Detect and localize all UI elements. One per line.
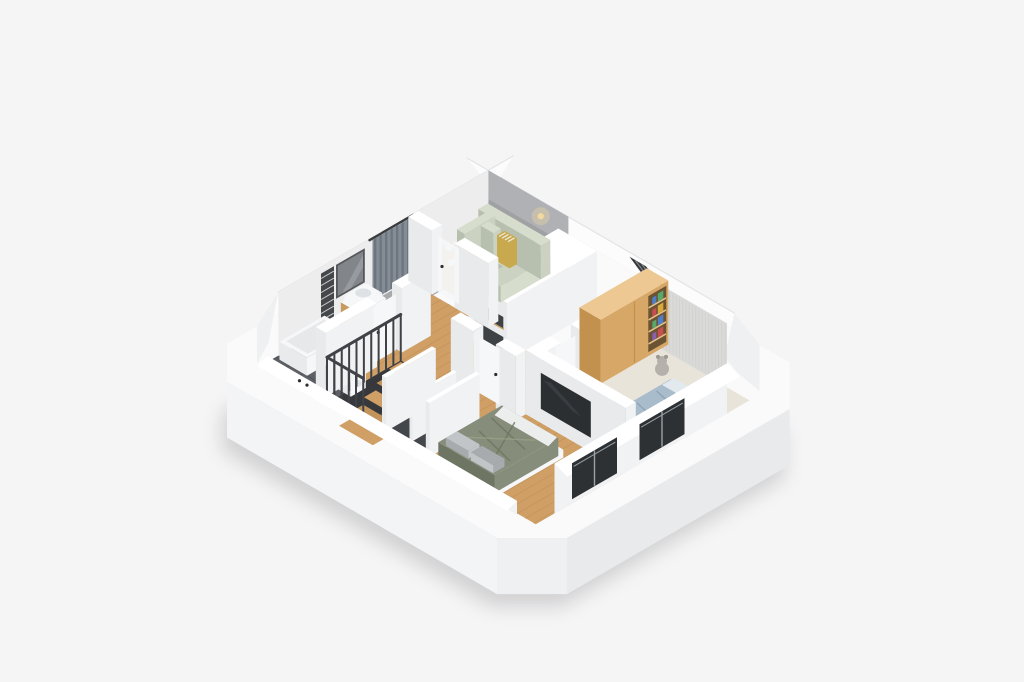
teddy-ear xyxy=(656,355,660,359)
sofa-back-face xyxy=(541,240,551,279)
curtain-fold xyxy=(402,222,404,283)
basin-bowl xyxy=(355,288,371,297)
door-handle xyxy=(440,265,443,268)
curtain-fold xyxy=(380,235,382,296)
living-wall-face xyxy=(488,257,498,327)
master-wall-face xyxy=(516,350,526,420)
curtain-fold xyxy=(391,228,393,289)
hinge-dot xyxy=(305,384,308,387)
curtain-fold xyxy=(396,225,398,286)
wall-lamp xyxy=(538,213,544,219)
plinth-side xyxy=(497,538,567,594)
door-handle xyxy=(494,373,497,376)
curtain-fold xyxy=(385,232,387,293)
hinge-dot xyxy=(298,379,301,382)
teddy-ear xyxy=(664,355,668,359)
master-door xyxy=(480,337,500,405)
floorplan-render: 3D isometric floor plan render xyxy=(0,0,1024,682)
isometric-floorplan xyxy=(0,0,1024,682)
striped-cushion-face xyxy=(510,238,518,268)
